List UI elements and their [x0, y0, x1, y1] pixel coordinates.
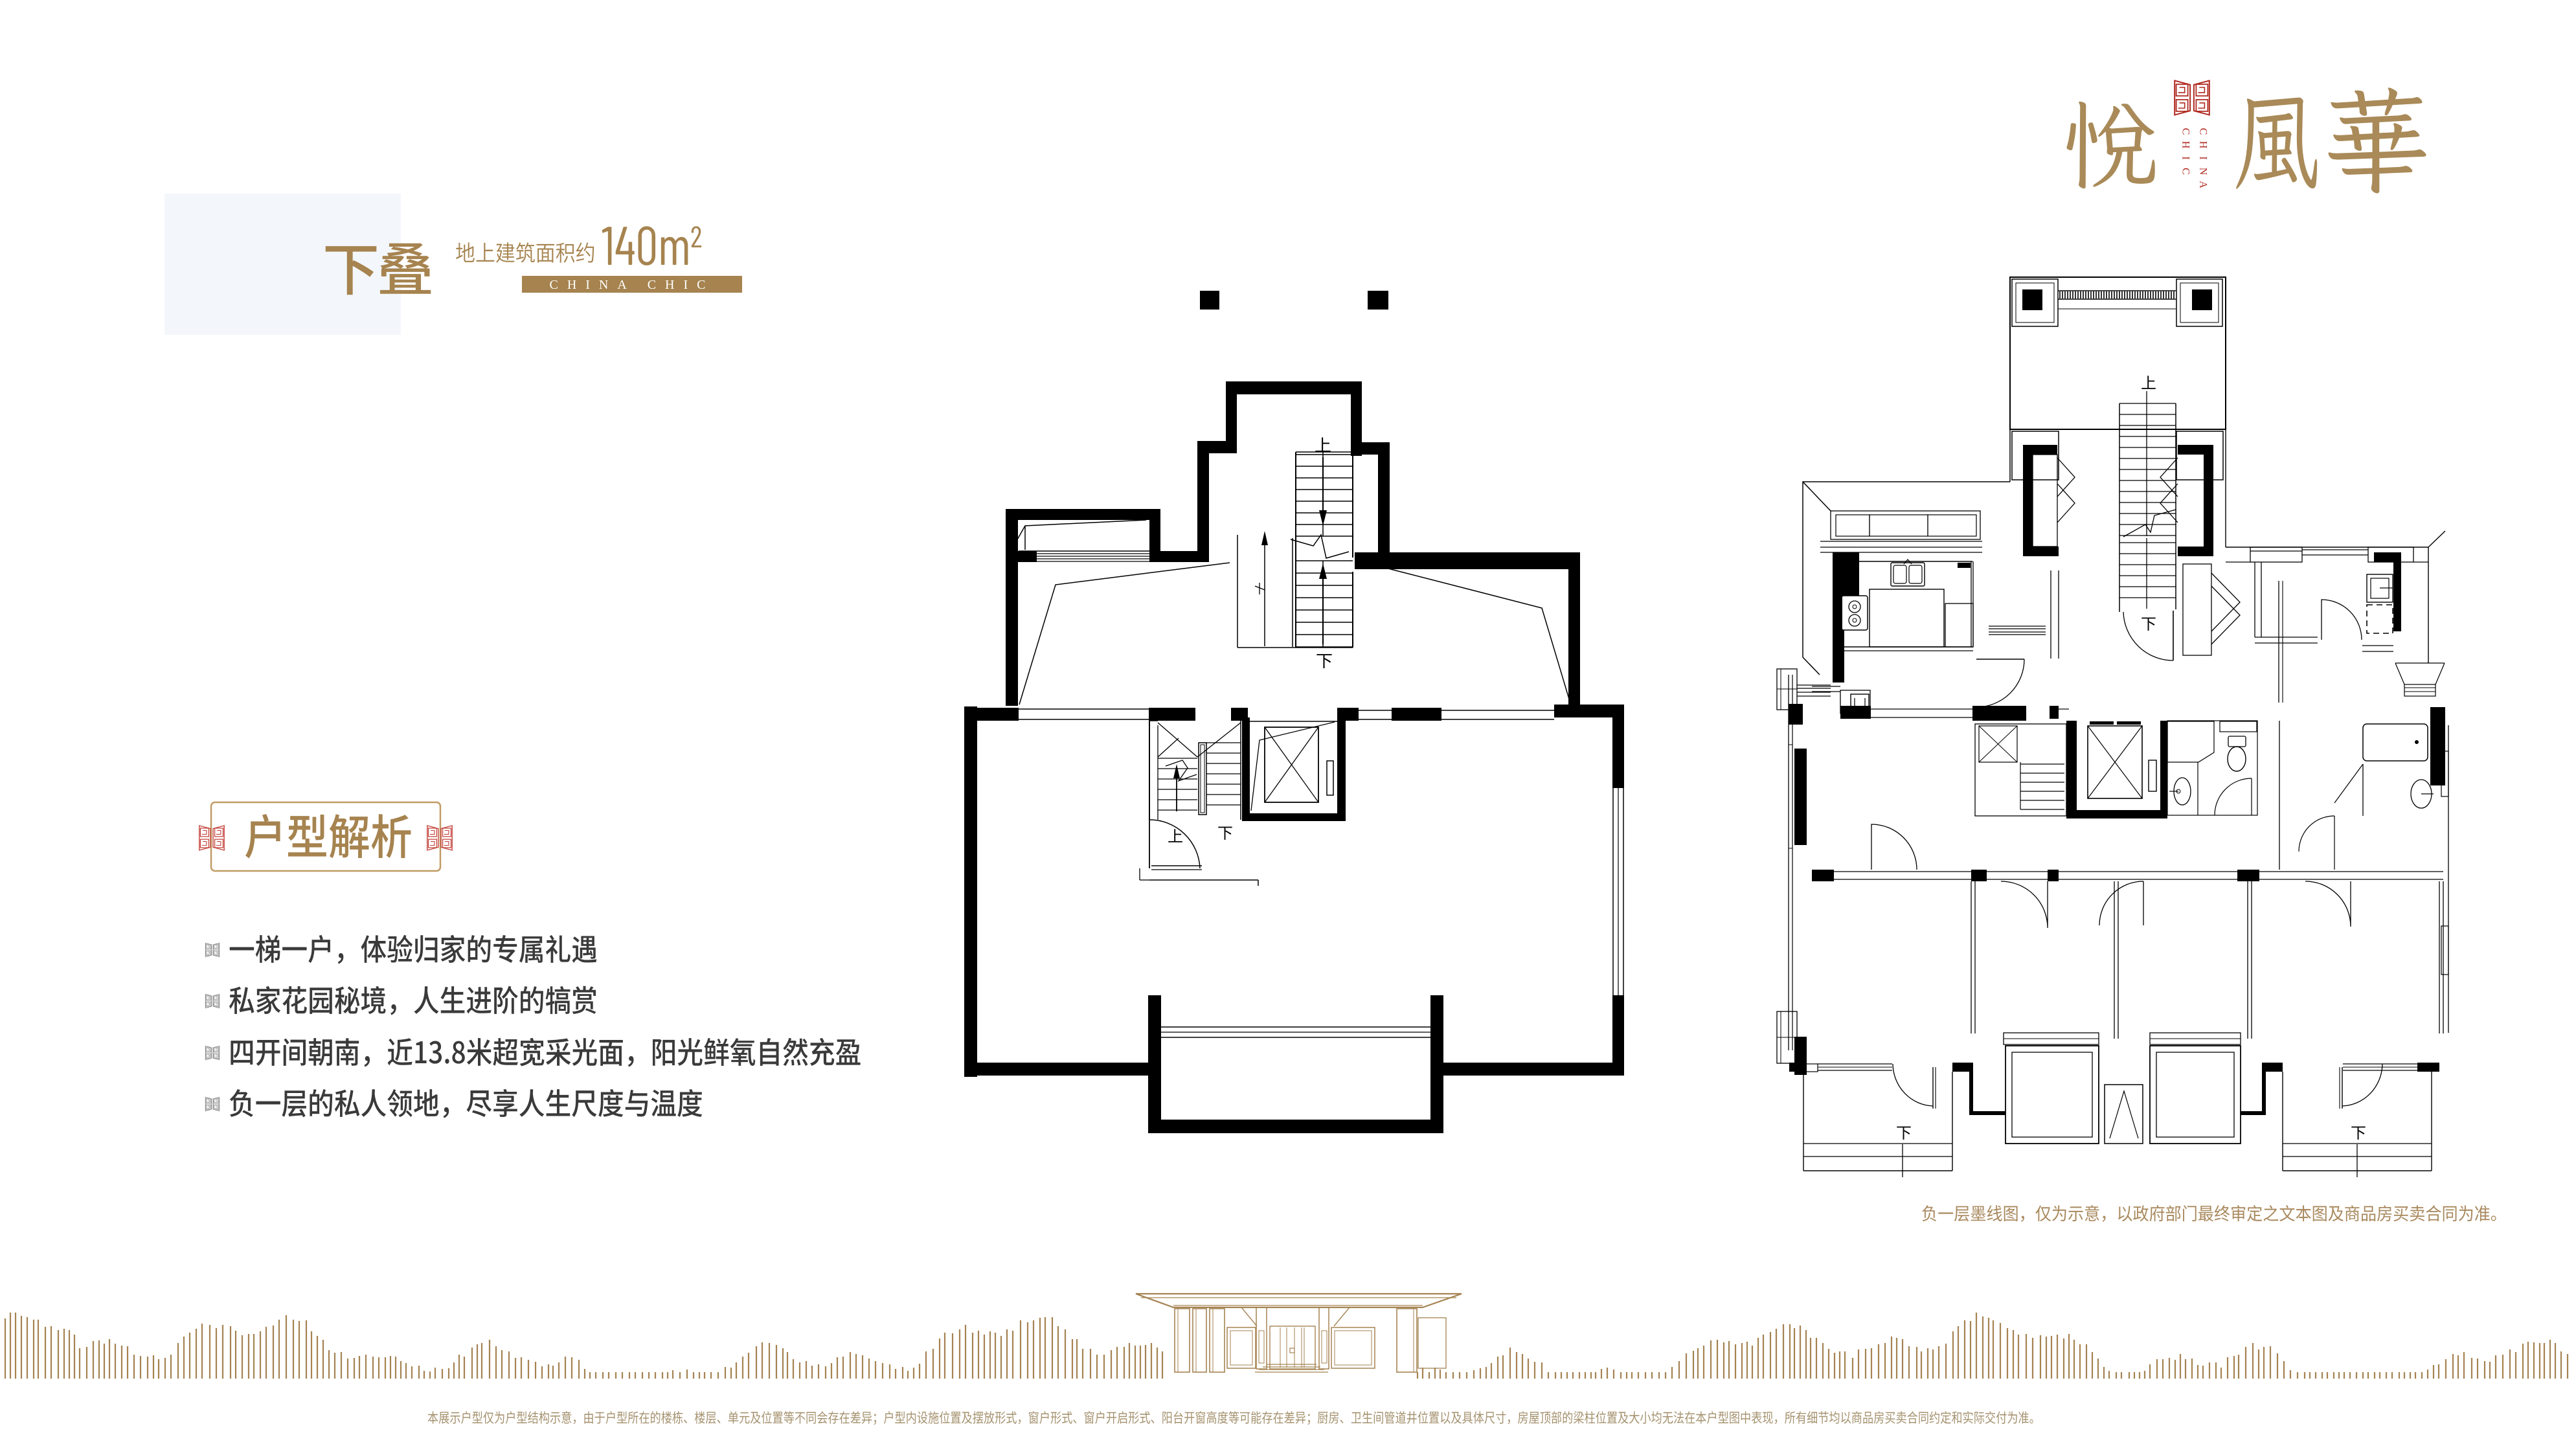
svg-text:I: I — [2197, 156, 2208, 159]
svg-text:C: C — [2180, 168, 2191, 175]
svg-text:A: A — [2197, 181, 2208, 188]
svg-text:CHINA CHIC: CHINA CHIC — [549, 278, 714, 292]
svg-text:C: C — [2180, 128, 2191, 135]
svg-text:H: H — [2180, 141, 2191, 149]
svg-text:N: N — [2197, 168, 2208, 175]
svg-text:H: H — [2197, 141, 2208, 149]
svg-text:C: C — [2197, 128, 2208, 135]
svg-text:I: I — [2180, 156, 2191, 159]
